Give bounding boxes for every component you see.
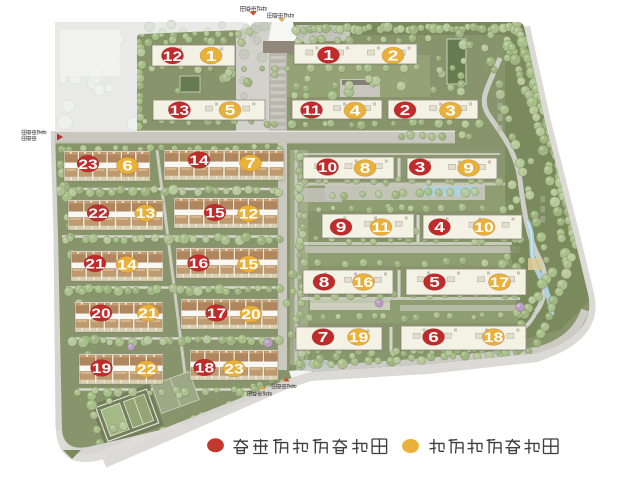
svg-text:5: 5 [429, 274, 440, 291]
svg-text:11: 11 [302, 104, 321, 119]
svg-text:10: 10 [474, 221, 494, 236]
svg-text:13: 13 [170, 104, 190, 119]
svg-text:4: 4 [350, 103, 361, 120]
svg-text:23: 23 [78, 158, 98, 173]
svg-text:3: 3 [445, 103, 456, 120]
svg-text:3: 3 [415, 159, 426, 176]
svg-text:20: 20 [241, 308, 261, 323]
svg-text:5: 5 [225, 102, 236, 119]
svg-text:7: 7 [318, 329, 329, 346]
svg-text:17: 17 [490, 276, 510, 291]
svg-text:20: 20 [91, 307, 111, 322]
svg-text:7: 7 [245, 155, 256, 172]
svg-text:8: 8 [360, 160, 371, 177]
svg-text:18: 18 [195, 361, 215, 376]
svg-text:21: 21 [85, 257, 105, 272]
svg-text:2: 2 [388, 48, 399, 65]
svg-text:23: 23 [224, 362, 244, 377]
svg-text:22: 22 [88, 207, 108, 222]
svg-text:16: 16 [354, 276, 374, 291]
svg-text:15: 15 [205, 206, 225, 221]
svg-text:22: 22 [137, 363, 157, 378]
svg-text:19: 19 [92, 362, 112, 377]
svg-text:1: 1 [206, 48, 217, 65]
svg-text:17: 17 [207, 307, 227, 322]
svg-text:19: 19 [349, 331, 369, 346]
svg-text:14: 14 [189, 154, 209, 169]
svg-text:4: 4 [434, 219, 445, 236]
svg-text:14: 14 [117, 258, 137, 273]
svg-text:13: 13 [136, 207, 156, 222]
svg-text:15: 15 [239, 258, 259, 273]
svg-text:2: 2 [400, 102, 411, 119]
svg-text:11: 11 [372, 221, 391, 236]
svg-text:10: 10 [318, 161, 338, 176]
svg-text:1: 1 [323, 47, 334, 64]
svg-text:12: 12 [163, 49, 183, 64]
svg-text:21: 21 [138, 307, 158, 322]
svg-text:9: 9 [336, 219, 347, 236]
svg-text:6: 6 [428, 329, 439, 346]
svg-text:8: 8 [319, 274, 330, 291]
svg-text:16: 16 [189, 257, 209, 272]
svg-text:18: 18 [484, 331, 504, 346]
svg-text:12: 12 [239, 207, 259, 222]
svg-text:9: 9 [463, 160, 474, 177]
svg-text:6: 6 [122, 158, 133, 175]
